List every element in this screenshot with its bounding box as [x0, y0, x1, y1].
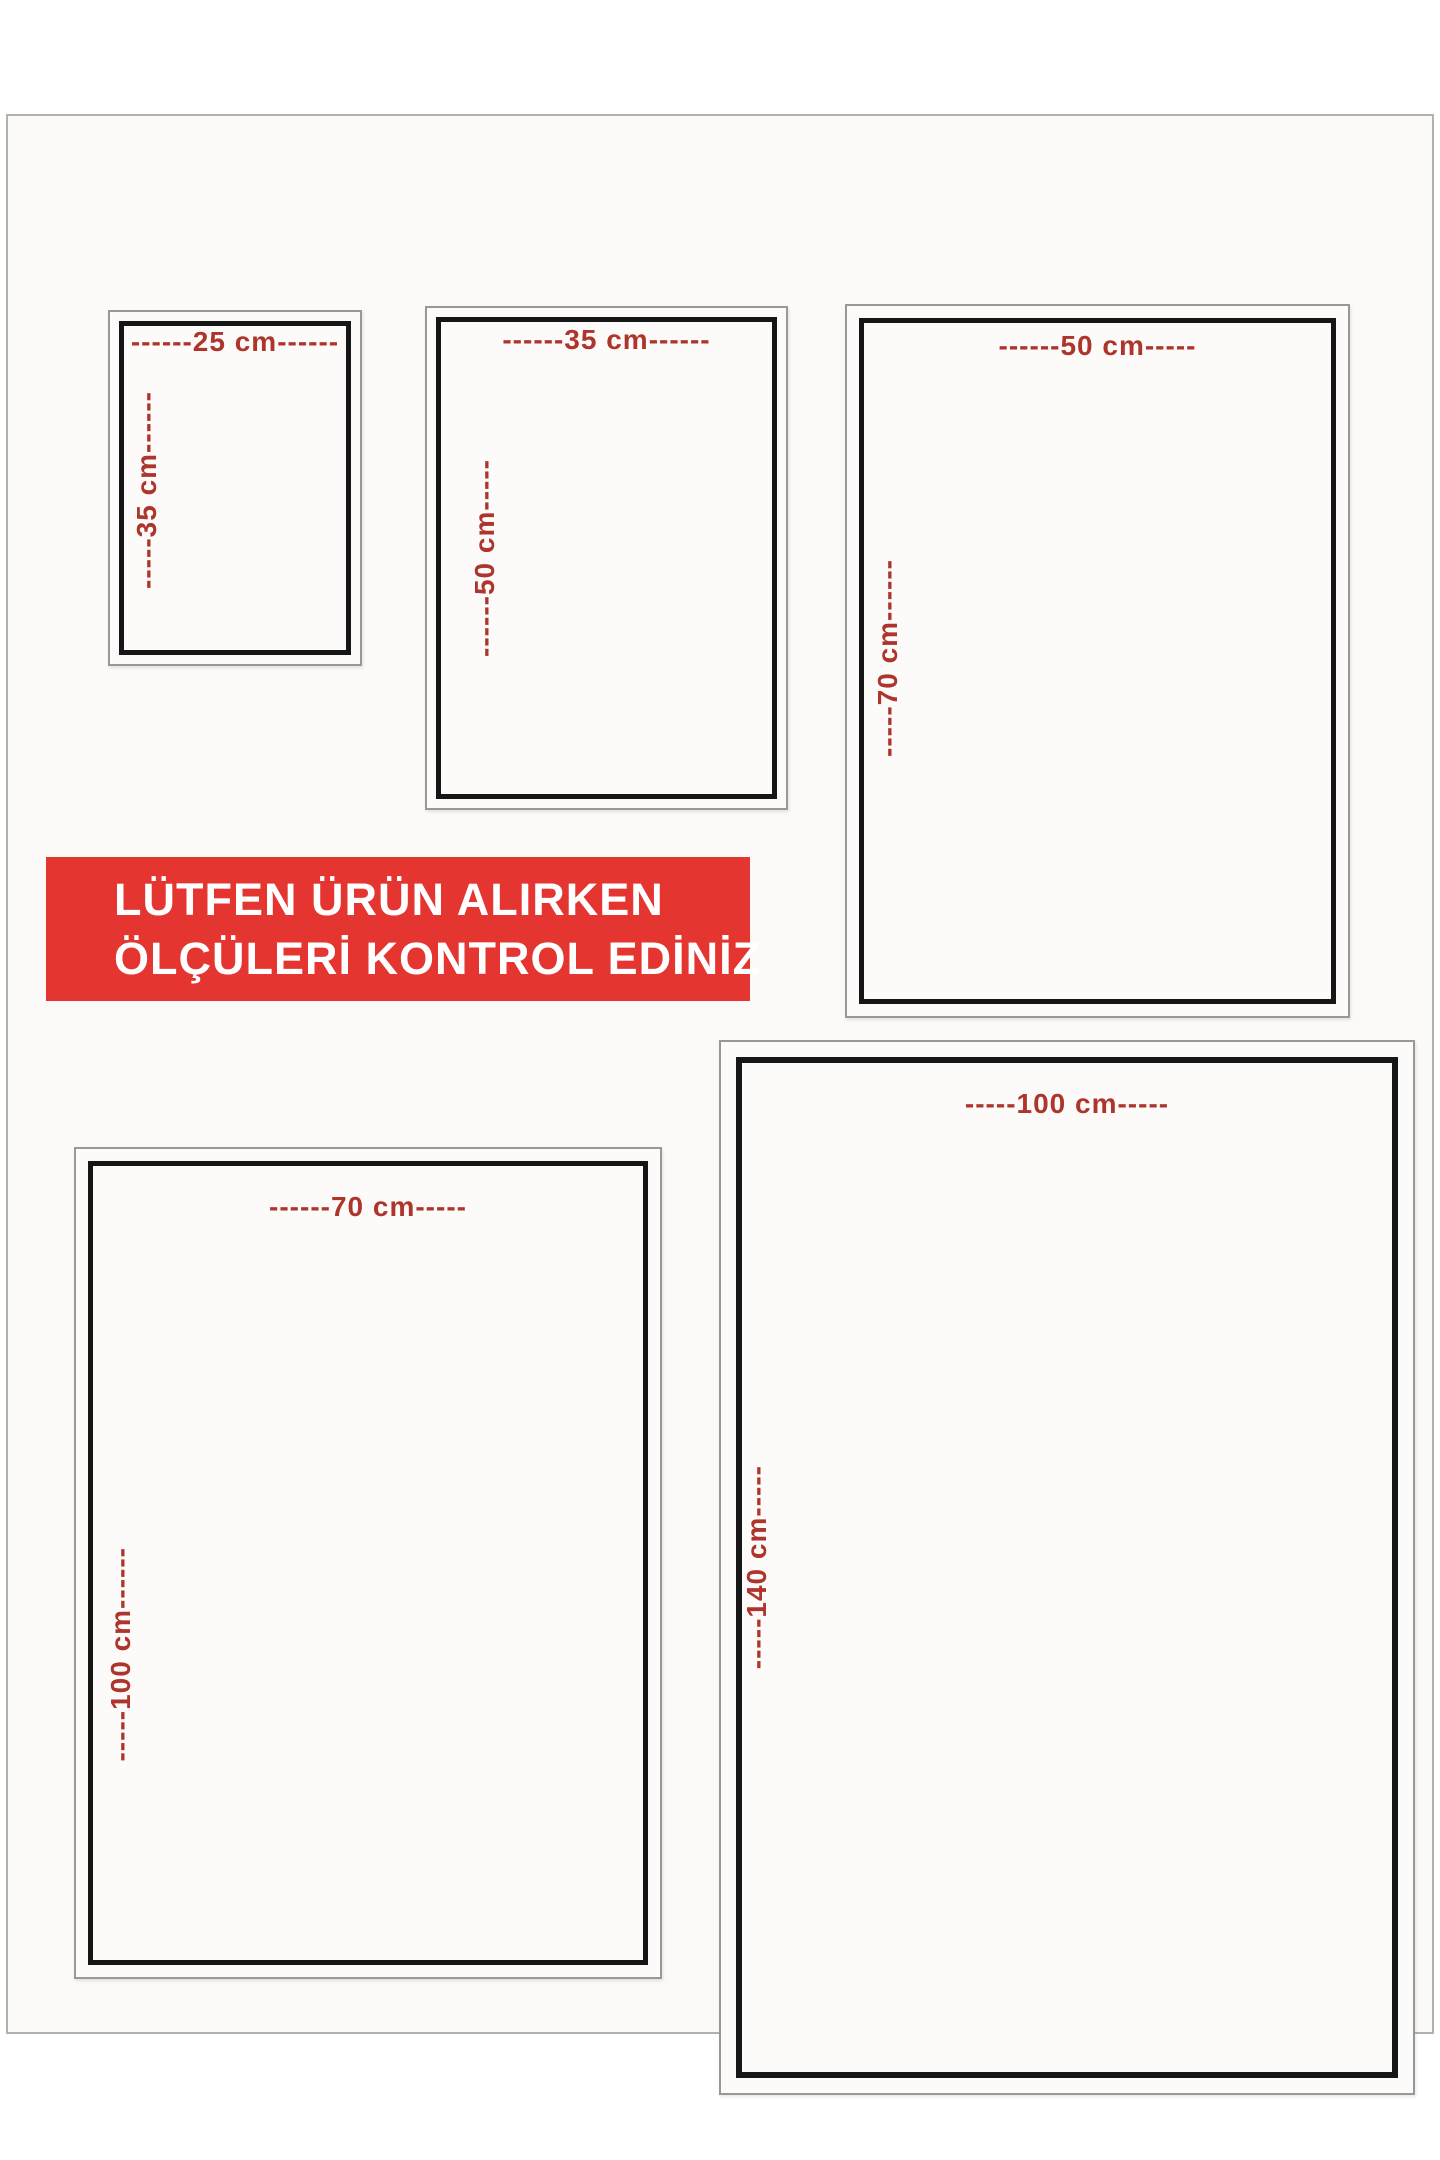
- height-dimension-label-140cm: -----140 cm-----: [741, 1465, 773, 1669]
- size-guide-image: { "banner": { "line1": "LÜTFEN ÜRÜN ALIR…: [0, 0, 1440, 2160]
- width-dimension-label-25cm: ------25 cm------: [131, 326, 339, 358]
- size-box-70x100: ------70 cm----- -----100 cm------: [74, 1147, 662, 1979]
- size-box-50x70-inner-border: [859, 318, 1336, 1004]
- width-dimension-label-50cm: ------50 cm-----: [999, 330, 1197, 362]
- size-box-25x35: ------25 cm------ -----35 cm------: [108, 310, 362, 666]
- size-box-50x70: ------50 cm----- -----70 cm------: [845, 304, 1350, 1018]
- width-dimension-label-100cm: -----100 cm-----: [965, 1088, 1169, 1120]
- size-box-100x140: -----100 cm----- -----140 cm-----: [719, 1040, 1415, 2095]
- height-dimension-label-100cm: -----100 cm------: [105, 1547, 137, 1762]
- height-dimension-label-50cm: ------50 cm-----: [469, 459, 501, 657]
- size-box-70x100-inner-border: [88, 1161, 648, 1965]
- warning-banner-line1: LÜTFEN ÜRÜN ALIRKEN: [114, 875, 750, 925]
- height-dimension-label-70cm: -----70 cm------: [872, 559, 904, 757]
- width-dimension-label-35cm: ------35 cm------: [502, 324, 710, 356]
- width-dimension-label-70cm: ------70 cm-----: [269, 1191, 467, 1223]
- size-chart-page: ------25 cm------ -----35 cm------ -----…: [6, 114, 1434, 2034]
- warning-banner-line2: ÖLÇÜLERİ KONTROL EDİNİZ: [114, 934, 750, 984]
- height-dimension-label-35cm: -----35 cm------: [131, 391, 163, 589]
- size-box-100x140-inner-border: [736, 1057, 1398, 2078]
- size-box-35x50: ------35 cm------ ------50 cm-----: [425, 306, 788, 810]
- warning-banner: LÜTFEN ÜRÜN ALIRKEN ÖLÇÜLERİ KONTROL EDİ…: [46, 857, 750, 1001]
